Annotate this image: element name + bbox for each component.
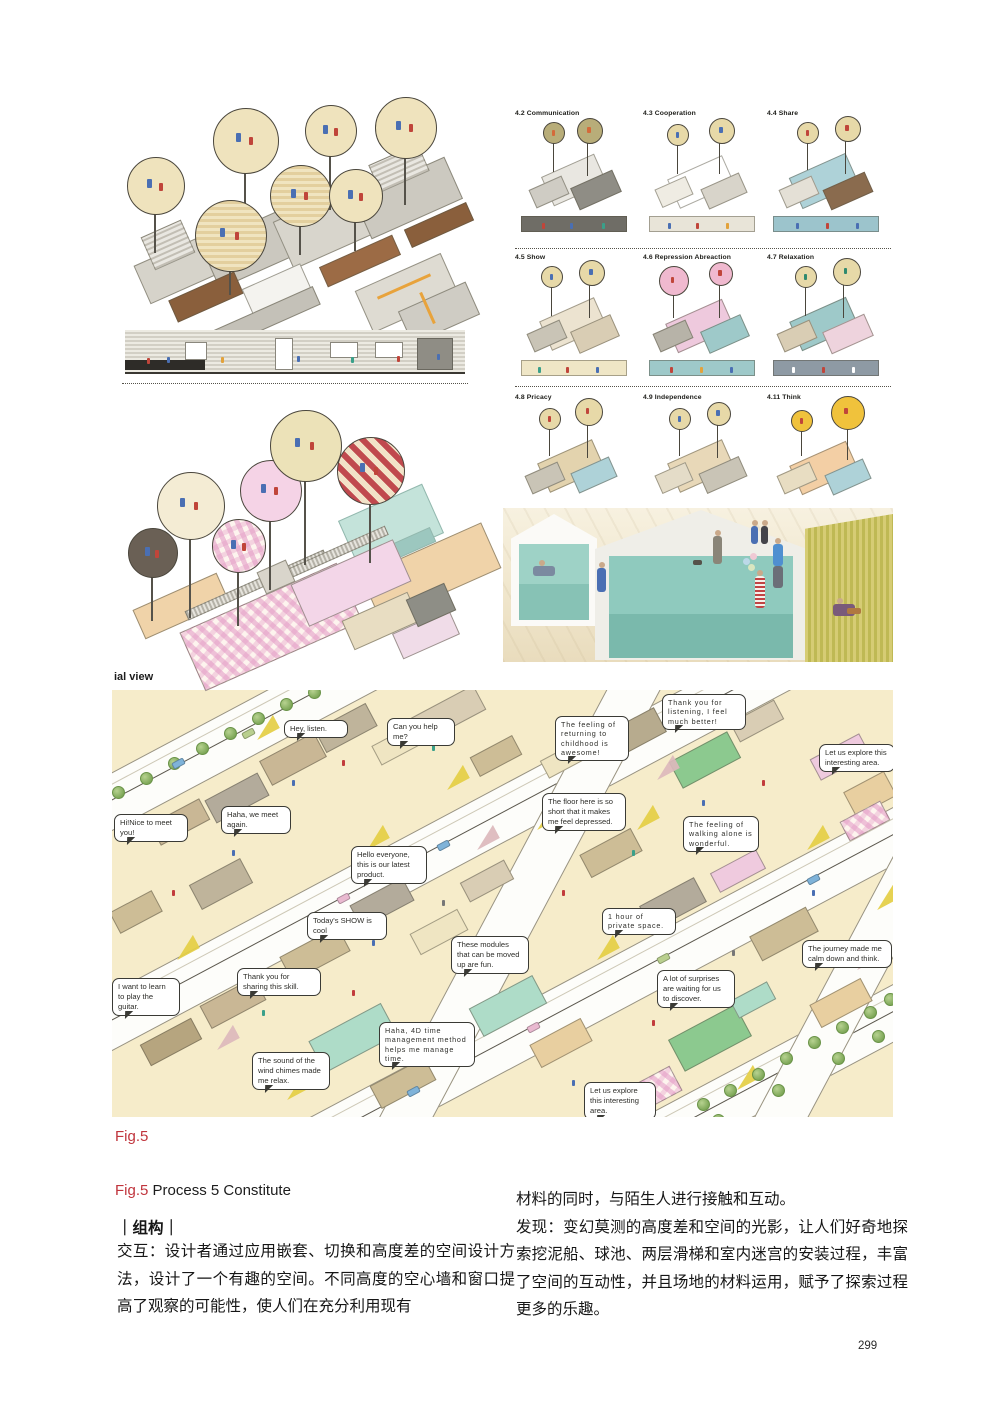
figure-caption-title: Process 5 Constitute <box>153 1182 291 1199</box>
mini-elevation <box>773 216 879 232</box>
dog <box>693 560 702 565</box>
person-head <box>775 538 781 544</box>
speech-bubble: The floor here is so short that it makes… <box>542 793 626 831</box>
callout-circle <box>305 105 357 157</box>
speech-bubble: Thank you for listening, I feel much bet… <box>662 694 746 730</box>
callout-stem <box>229 270 231 295</box>
behavior-matrix: 4.2 Communication 4.3 Cooperation 4.4 Sh… <box>515 108 893 510</box>
callout-circle <box>575 398 603 426</box>
callout-circle <box>128 528 178 578</box>
speech-bubble: Can you help me? <box>387 718 455 746</box>
partial-view-label: ial view <box>114 671 153 683</box>
figure-axonometric-2 <box>110 405 505 670</box>
mini-elevation <box>649 360 755 376</box>
dotted-divider <box>515 248 891 249</box>
balloon <box>748 564 755 571</box>
speech-bubble: A lot of surprises are waiting for us to… <box>657 970 735 1008</box>
speech-bubble: 1 hour of private space. <box>602 908 676 935</box>
matrix-cell: 4.4 Share <box>767 110 887 238</box>
matrix-cell: 4.8 Pricacy <box>515 394 635 522</box>
callout-circle <box>375 97 437 159</box>
callout-circle <box>127 157 185 215</box>
person-dot <box>232 850 235 856</box>
callout-stem <box>354 221 356 251</box>
person-head <box>757 570 763 576</box>
text-column-right: 材料的同时，与陌生人进行接触和互动。 发现：变幻莫测的高度差和空间的光影，让人们… <box>516 1186 908 1324</box>
figure-number: Fig.5 <box>115 1128 148 1145</box>
mini-plate <box>528 176 569 209</box>
pavilion-interior-floor <box>519 584 589 620</box>
callout-circle <box>577 118 603 144</box>
person-dot <box>652 1020 655 1026</box>
speech-bubble: Hey, listen. <box>284 720 348 738</box>
callout-circle <box>541 266 563 288</box>
body-paragraph: 发现：变幻莫测的高度差和空间的光影，让人们好奇地探索挖泥船、球池、两层滑梯和室内… <box>516 1214 908 1324</box>
text-column-left: ｜组构｜ 交互：设计者通过应用嵌套、切换和高度差的空间设计方法，设计了一个有趣的… <box>117 1216 515 1321</box>
person-dot <box>572 1080 575 1086</box>
matrix-cell-label: 4.11 Think <box>767 394 887 401</box>
tree <box>772 1084 785 1097</box>
person-dog-walker <box>713 536 722 564</box>
tree <box>872 1030 885 1043</box>
speech-bubble: I want to learn to play the guitar. <box>112 978 180 1016</box>
person-dot <box>432 745 435 751</box>
callout-circle <box>337 437 405 505</box>
dotted-divider <box>515 386 891 387</box>
speech-bubble: Hi!Nice to meet you! <box>114 814 188 842</box>
person-dot <box>262 1010 265 1016</box>
tree <box>280 698 293 711</box>
callout-circle <box>659 266 689 296</box>
callout-circle <box>795 266 817 288</box>
person-dot <box>167 357 170 363</box>
mini-elevation <box>521 360 627 376</box>
building-block <box>470 735 523 777</box>
tree <box>832 1052 845 1065</box>
person-background <box>751 526 758 544</box>
callout-circle <box>669 408 691 430</box>
person-dot <box>812 890 815 896</box>
building-block-teal <box>730 981 776 1018</box>
callout-circle <box>709 118 735 144</box>
matrix-cell-label: 4.3 Cooperation <box>643 110 763 117</box>
section-elevation <box>125 330 465 374</box>
tree <box>252 712 265 725</box>
person-dot <box>342 760 345 766</box>
speech-bubble: Haha, 4D time management method helps me… <box>379 1022 475 1067</box>
matrix-cell: 4.7 Relaxation <box>767 254 887 382</box>
callout-stem <box>237 571 239 626</box>
person-head <box>599 562 605 568</box>
person-dot <box>221 357 224 363</box>
callout-circle <box>270 165 332 227</box>
matrix-cell: 4.11 Think <box>767 394 887 522</box>
callout-circle <box>835 116 861 142</box>
window-opening <box>185 342 207 360</box>
person-head <box>837 598 843 604</box>
section-dark-base <box>125 360 205 370</box>
person-striped-dress <box>755 576 765 608</box>
tree <box>224 727 237 740</box>
person-dot <box>352 990 355 996</box>
person-dot <box>442 900 445 906</box>
mini-elevation <box>649 216 755 232</box>
matrix-cell-label: 4.6 Repression Abreaction <box>643 254 763 261</box>
speech-bubble: Haha, we meet again. <box>221 806 291 834</box>
speech-bubble: The sound of the wind chimes made me rel… <box>252 1052 330 1090</box>
callout-stem <box>304 480 306 565</box>
tree <box>196 742 209 755</box>
speech-bubble: Today's SHOW is cool <box>307 912 387 940</box>
person-head <box>752 520 758 526</box>
matrix-cell: 4.9 Independence <box>643 394 763 522</box>
person-lounging <box>533 566 555 576</box>
plaza-wedge <box>210 1025 240 1050</box>
matrix-cell-label: 4.7 Relaxation <box>767 254 887 261</box>
speech-bubble: Hello everyone, this is our latest produ… <box>351 846 427 884</box>
person-dot <box>732 950 735 956</box>
person-dot <box>702 800 705 806</box>
speech-bubble: The feeling of returning to childhood is… <box>555 716 629 761</box>
matrix-cell: 4.5 Show <box>515 254 635 382</box>
speech-bubble: The journey made me calm down and think. <box>802 940 892 968</box>
speech-bubble: The feeling of walking alone is wonderfu… <box>683 816 759 852</box>
matrix-cell: 4.6 Repression Abreaction <box>643 254 763 382</box>
person-dot <box>292 780 295 786</box>
page-number: 299 <box>858 1340 877 1352</box>
person-dot <box>172 890 175 896</box>
callout-circle <box>709 262 733 286</box>
tree <box>724 1084 737 1097</box>
callout-circle <box>213 108 279 174</box>
person-dot <box>562 890 565 896</box>
mini-plate <box>526 320 567 353</box>
mini-plate <box>524 462 565 495</box>
body-paragraph: 材料的同时，与陌生人进行接触和互动。 <box>516 1186 908 1214</box>
callout-stem <box>299 225 301 255</box>
door-opening <box>275 338 293 370</box>
person-head <box>539 560 545 566</box>
speech-bubble: Let us explore this interesting area. <box>819 744 893 772</box>
building-block <box>112 890 163 934</box>
callout-circle <box>157 472 225 540</box>
matrix-cell-label: 4.8 Pricacy <box>515 394 635 401</box>
callout-stem <box>189 538 191 618</box>
section-heading: ｜组构｜ <box>117 1216 515 1238</box>
callout-circle <box>579 260 605 286</box>
building-block <box>189 858 253 910</box>
tree <box>884 993 893 1006</box>
callout-circle <box>195 200 267 272</box>
mini-elevation <box>521 216 627 232</box>
mini-plate <box>776 320 817 353</box>
callout-circle <box>539 408 561 430</box>
callout-stem <box>404 155 406 205</box>
person-dot <box>397 356 400 362</box>
dotted-divider <box>122 383 468 384</box>
garage-volume <box>417 338 453 370</box>
tree <box>697 1098 710 1111</box>
tree <box>112 786 125 799</box>
lawn-wedge <box>440 765 470 790</box>
tree <box>752 1068 765 1081</box>
speech-bubble: Let us explore this interesting area. <box>584 1082 656 1117</box>
mini-elevation <box>773 360 879 376</box>
person-dot <box>762 780 765 786</box>
matrix-cell-label: 4.4 Share <box>767 110 887 117</box>
tree <box>864 1006 877 1019</box>
figure-axonometric-1 <box>110 95 490 390</box>
person-head <box>762 520 768 526</box>
balloon <box>750 553 757 560</box>
speech-bubble: These modules that can be moved up are f… <box>451 936 529 974</box>
person-dot <box>372 940 375 946</box>
tree <box>836 1021 849 1034</box>
matrix-cell-label: 4.5 Show <box>515 254 635 261</box>
lawn-wedge <box>630 805 660 830</box>
person-dot <box>147 358 150 364</box>
render-pavilions <box>503 508 893 662</box>
callout-circle <box>270 410 342 482</box>
tree <box>780 1052 793 1065</box>
callout-circle <box>707 402 731 426</box>
person-dot <box>297 356 300 362</box>
matrix-cell: 4.2 Communication <box>515 110 635 238</box>
callout-circle <box>797 122 819 144</box>
callout-circle <box>543 122 565 144</box>
matrix-cell: 4.3 Cooperation <box>643 110 763 238</box>
callout-stem <box>369 503 371 563</box>
tree <box>808 1036 821 1049</box>
person-standing-legs <box>773 566 783 588</box>
callout-stem <box>154 213 156 253</box>
person-dot <box>437 354 440 360</box>
person-kneeling <box>597 568 606 592</box>
person-head <box>715 530 721 536</box>
callout-circle <box>667 124 689 146</box>
window-opening <box>330 342 358 358</box>
masterplan-isometric: Hey, listen. Can you help me? Hi!Nice to… <box>112 690 893 1117</box>
person-background <box>761 526 768 544</box>
figure-caption: Fig.5 Process 5 Constitute <box>115 1182 291 1199</box>
matrix-cell-label: 4.2 Communication <box>515 110 635 117</box>
guitar <box>847 608 861 614</box>
person-standing <box>773 544 783 566</box>
figure-caption-fig: Fig.5 <box>115 1182 148 1199</box>
matrix-cell-label: 4.9 Independence <box>643 394 763 401</box>
pavilion-interior-floor <box>609 614 793 658</box>
callout-stem <box>269 520 271 590</box>
person-dot <box>632 850 635 856</box>
callout-circle <box>833 258 861 286</box>
body-paragraph: 交互：设计者通过应用嵌套、切换和高度差的空间设计方法，设计了一个有趣的空间。不同… <box>117 1238 515 1321</box>
callout-stem <box>151 576 153 621</box>
pavilion-slat-wall <box>805 514 893 662</box>
callout-circle <box>329 169 383 223</box>
callout-circle <box>212 519 266 573</box>
callout-circle <box>831 396 865 430</box>
tree <box>140 772 153 785</box>
speech-bubble: Thank you for sharing this skill. <box>237 968 321 996</box>
person-dot <box>351 357 354 363</box>
callout-circle <box>791 410 813 432</box>
